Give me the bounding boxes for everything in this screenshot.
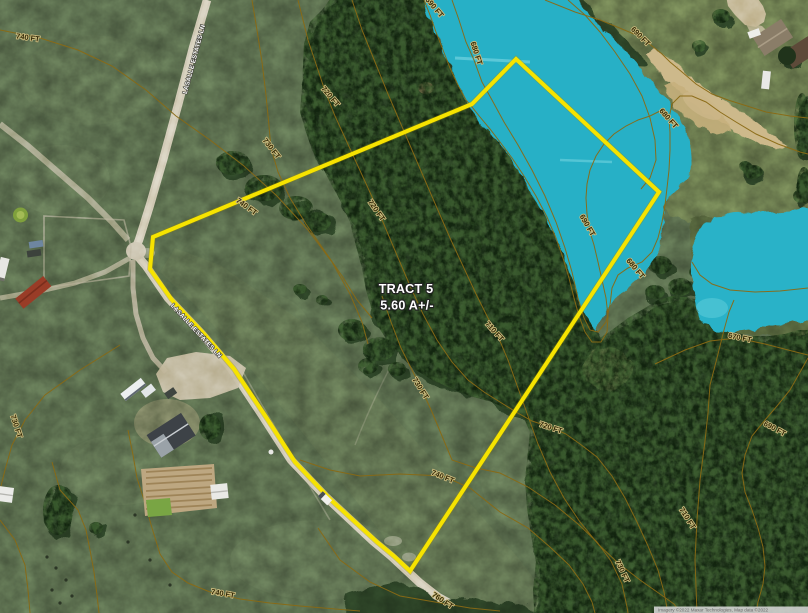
svg-text:5.60 A+/-: 5.60 A+/- bbox=[380, 299, 434, 313]
svg-text:TRACT 5: TRACT 5 bbox=[379, 282, 434, 296]
svg-text:Imagery ©2022 Maxar Technologi: Imagery ©2022 Maxar Technologies, Map da… bbox=[658, 607, 769, 613]
